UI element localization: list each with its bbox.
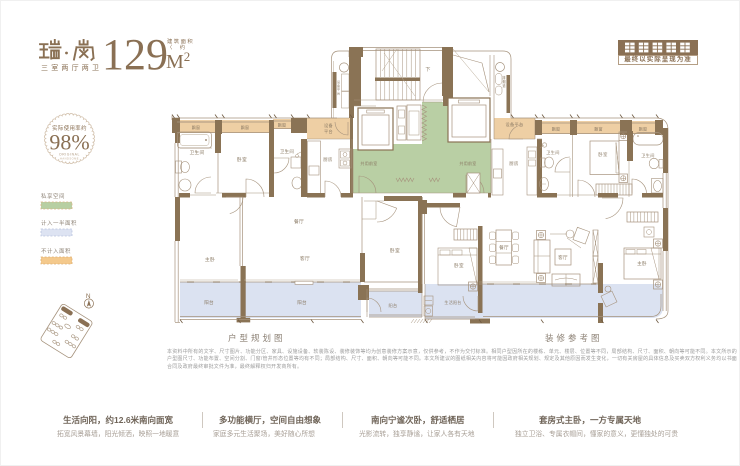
svg-text:阳台: 阳台 xyxy=(297,299,307,306)
svg-text:客厅: 客厅 xyxy=(558,254,568,261)
svg-text:客厅: 客厅 xyxy=(300,255,310,262)
svg-text:卧室: 卧室 xyxy=(237,156,247,163)
svg-text:生活阳台: 生活阳台 xyxy=(444,299,461,305)
svg-text:主卧: 主卧 xyxy=(637,260,647,267)
svg-text:飘窗: 飘窗 xyxy=(594,126,603,132)
svg-text:卧室: 卧室 xyxy=(390,247,400,254)
svg-text:飘窗: 飘窗 xyxy=(278,122,287,128)
svg-text:飘窗: 飘窗 xyxy=(552,126,561,132)
svg-text:台: 台 xyxy=(337,90,340,95)
svg-text:主卧: 主卧 xyxy=(205,256,215,263)
svg-text:平台: 平台 xyxy=(324,128,333,135)
svg-text:卫生间: 卫生间 xyxy=(641,152,654,159)
svg-text:下: 下 xyxy=(425,67,430,73)
svg-text:设备: 设备 xyxy=(324,122,333,129)
svg-text:阳台: 阳台 xyxy=(389,302,398,309)
svg-text:共用前室: 共用前室 xyxy=(360,160,377,166)
svg-text:卫生间: 卫生间 xyxy=(280,148,294,155)
svg-text:卧室: 卧室 xyxy=(598,151,608,158)
svg-text:餐厅: 餐厅 xyxy=(294,218,304,225)
svg-text:共用前室: 共用前室 xyxy=(459,160,476,166)
svg-text:飘窗: 飘窗 xyxy=(639,126,648,132)
svg-text:飘窗: 飘窗 xyxy=(192,124,201,130)
svg-text:餐厅: 餐厅 xyxy=(499,244,509,251)
svg-text:厨房: 厨房 xyxy=(323,156,333,163)
svg-text:卧室: 卧室 xyxy=(454,262,464,269)
svg-text:道: 道 xyxy=(502,83,506,88)
svg-text:阳台: 阳台 xyxy=(204,299,214,306)
svg-text:厨房: 厨房 xyxy=(509,160,519,167)
svg-text:卫生间: 卫生间 xyxy=(546,149,559,156)
svg-text:卫生间: 卫生间 xyxy=(190,149,205,156)
svg-text:设备平台: 设备平台 xyxy=(506,121,524,128)
svg-text:飘窗: 飘窗 xyxy=(241,124,250,130)
